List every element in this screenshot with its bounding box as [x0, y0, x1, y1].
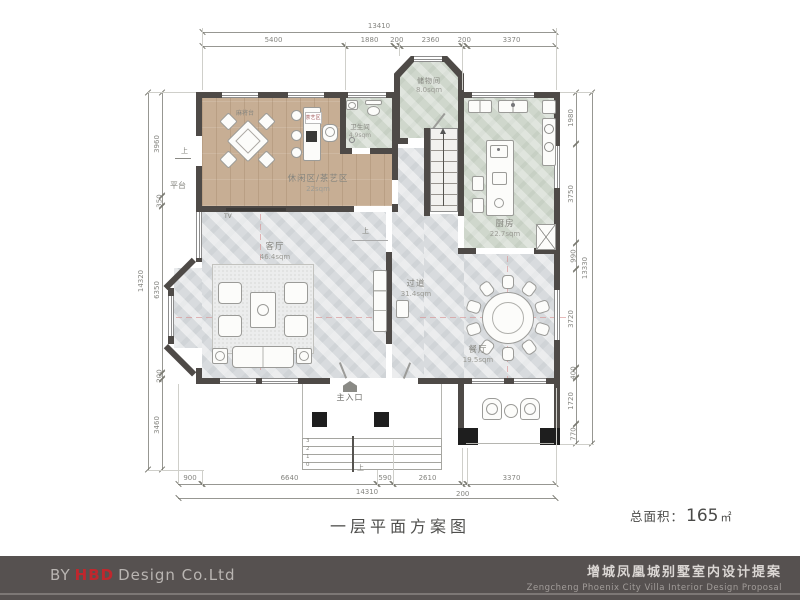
- dim-right: 1720: [566, 378, 577, 424]
- bar-stool: [291, 147, 302, 158]
- dining-chair: [502, 275, 514, 289]
- armchair: [218, 282, 242, 304]
- footer-project-cn: 增城凤凰城别墅室内设计提案: [527, 561, 782, 580]
- wall-terrace-right: [554, 384, 560, 428]
- island-stool: [472, 176, 484, 191]
- room-label-leisure: 休闲区/茶艺区 22sqm: [270, 175, 366, 193]
- room-label-storage: 储物间 8.0sqm: [394, 78, 464, 94]
- dim-right: 3750: [566, 144, 577, 243]
- floor-storage: [400, 62, 458, 138]
- footer-project-en: Zengcheng Phoenix City Villa Interior De…: [527, 583, 782, 593]
- extension-line: [560, 444, 594, 445]
- terrace-edge: [466, 443, 554, 444]
- dim-right: 990: [566, 243, 577, 269]
- door-gap-kitchen: [458, 216, 464, 248]
- total-area: 总面积：165㎡: [630, 506, 731, 526]
- dim-left: 3960: [152, 92, 163, 196]
- door-gap-platform: [196, 136, 202, 166]
- dim-top: 3370: [467, 36, 556, 47]
- dim-top: 2360: [400, 36, 462, 47]
- up-marker-platform: 上: [181, 148, 188, 155]
- dim-left-total: 14320: [138, 92, 149, 470]
- dim-top: 5400: [202, 36, 345, 47]
- total-area-unit: ㎡: [720, 511, 731, 524]
- extension-line: [467, 448, 468, 486]
- extension-line: [377, 470, 378, 486]
- platform-arrow: [175, 158, 191, 159]
- coffee-table-decor: [257, 304, 269, 316]
- porch-column: [374, 412, 389, 427]
- door-gap-leisure: [392, 180, 398, 204]
- island-faucet: [497, 148, 500, 151]
- dim-bottom: 3370: [467, 474, 556, 485]
- extension-line: [202, 470, 203, 486]
- section-mark: [352, 436, 354, 472]
- stair-arrow-head: [440, 128, 446, 134]
- toilet-tank: [365, 100, 382, 105]
- window: [472, 378, 504, 384]
- dim-bottom: 2610: [393, 474, 462, 485]
- window: [262, 378, 298, 384]
- dim-right-total: 13330: [582, 92, 593, 444]
- bar-stool: [291, 110, 302, 121]
- porch-edge: [441, 384, 442, 438]
- main-entrance-label: 主入口: [330, 394, 370, 402]
- dim-bottom: 6640: [202, 474, 377, 485]
- hall-cabinet: [396, 300, 409, 318]
- platform-label: 平台: [170, 182, 186, 190]
- kitchen-faucet: [511, 103, 515, 107]
- wall-bay-diagonal-bottom: [164, 344, 197, 377]
- dim-top-total: 13410: [202, 22, 556, 33]
- room-label-hallway: 过道 31.4sqm: [388, 280, 444, 298]
- dim-left: 6350: [152, 206, 163, 373]
- threshold-line: [352, 240, 388, 241]
- burner: [544, 124, 554, 134]
- extension-line: [148, 470, 204, 471]
- window: [554, 290, 560, 340]
- room-label-kitchen: 厨房 22.7sqm: [470, 220, 540, 238]
- window: [348, 92, 386, 98]
- island-stool: [472, 198, 484, 213]
- door-gap-bathroom: [352, 148, 370, 154]
- total-area-label: 总面积：: [630, 509, 684, 524]
- sofa: [232, 346, 294, 368]
- extension-line: [462, 448, 463, 486]
- bar-stool: [291, 130, 302, 141]
- island-hob: [494, 198, 504, 208]
- hall-console: [373, 270, 387, 332]
- dim-right: 1980: [566, 92, 577, 144]
- up-marker-hall: 上: [362, 228, 369, 235]
- stair-arrow-line: [443, 134, 444, 206]
- step-number: 0: [306, 463, 310, 469]
- dim-top: 1880: [345, 36, 394, 47]
- extension-line: [345, 42, 346, 90]
- dim-bottom: 900: [178, 474, 202, 485]
- terrace-chair-seat: [486, 403, 498, 415]
- extension-line: [393, 440, 394, 486]
- step-line: [302, 454, 442, 455]
- island-board: [492, 172, 507, 185]
- entry-door-gap: [330, 378, 418, 384]
- step-line: [302, 446, 442, 447]
- armchair: [218, 315, 242, 337]
- tv-label: TV: [224, 214, 232, 220]
- room-label-dining: 餐厅 19.5sqm: [448, 346, 508, 364]
- cooktop-panel: [542, 100, 556, 114]
- terrace-table: [504, 404, 518, 418]
- window: [168, 296, 174, 336]
- step-line: [302, 462, 442, 463]
- bathroom-sink-bowl: [348, 102, 356, 109]
- terrace-chair-seat: [524, 403, 536, 415]
- extension-line: [556, 28, 557, 90]
- armchair: [284, 315, 308, 337]
- extension-line: [399, 42, 400, 56]
- side-table-lamp: [215, 351, 225, 361]
- island-sink: [490, 145, 508, 158]
- floor-plan-sheet: 麻将台 茶艺区 休闲区/茶艺区 22sqm TV 卫生间 4.9sqm 储物间 …: [0, 0, 800, 600]
- kitchen-top-cabinet: [468, 100, 492, 113]
- opening-kitchen-dining: [476, 248, 534, 254]
- mahjong-table-label: 麻将台: [236, 111, 254, 117]
- tv-unit: [226, 208, 286, 211]
- footer-company: BYHBDDesign Co.Ltd: [50, 566, 236, 584]
- extension-line: [148, 92, 196, 93]
- tea-bar-label-box: 茶艺区: [305, 112, 322, 124]
- up-marker-steps: 上: [357, 465, 364, 472]
- footer-edge-line: [0, 593, 800, 595]
- extension-line: [556, 388, 557, 486]
- side-table-lamp: [299, 351, 309, 361]
- tea-stove: [306, 131, 317, 142]
- extension-line: [178, 384, 179, 484]
- step-number: 3: [306, 439, 310, 445]
- window: [222, 92, 258, 98]
- total-area-value: 165: [686, 506, 718, 526]
- footer-brand: HBD: [75, 566, 114, 584]
- bar-chair-seat: [325, 127, 335, 137]
- room-label-living: 客厅 46.4sqm: [240, 243, 310, 261]
- window: [472, 92, 534, 98]
- dim-bottom-total: 14310: [178, 488, 556, 499]
- porch-edge: [302, 384, 303, 438]
- floor-bay-window: [174, 268, 202, 348]
- burner: [544, 142, 554, 152]
- armchair: [284, 282, 308, 304]
- footer-brand-rest: Design Co.Ltd: [118, 566, 235, 584]
- step-number: 1: [306, 455, 310, 461]
- extension-line: [202, 28, 203, 90]
- dim-right: 3720: [566, 269, 577, 368]
- step-number: 2: [306, 447, 310, 453]
- window: [414, 56, 442, 62]
- window: [288, 92, 324, 98]
- room-label-bathroom: 卫生间 4.9sqm: [338, 124, 382, 139]
- footer-bar: BYHBDDesign Co.Ltd 增城凤凰城别墅室内设计提案 Zengche…: [0, 556, 800, 600]
- toilet-bowl: [367, 106, 380, 116]
- porch-column: [312, 412, 327, 427]
- dim-left: 3460: [152, 379, 163, 470]
- tea-bar-label: 茶艺区: [306, 115, 321, 121]
- extension-line: [560, 92, 594, 93]
- wall-terrace-left: [458, 384, 464, 428]
- footer-project: 增城凤凰城别墅室内设计提案 Zengcheng Phoenix City Vil…: [527, 561, 782, 593]
- dining-lazy-susan: [492, 302, 524, 334]
- dim-right: 770: [566, 424, 577, 444]
- staircase: [430, 128, 458, 212]
- window: [220, 378, 256, 384]
- window: [196, 212, 202, 258]
- footer-by: BY: [50, 566, 71, 584]
- extension-line: [462, 42, 463, 90]
- window: [514, 378, 546, 384]
